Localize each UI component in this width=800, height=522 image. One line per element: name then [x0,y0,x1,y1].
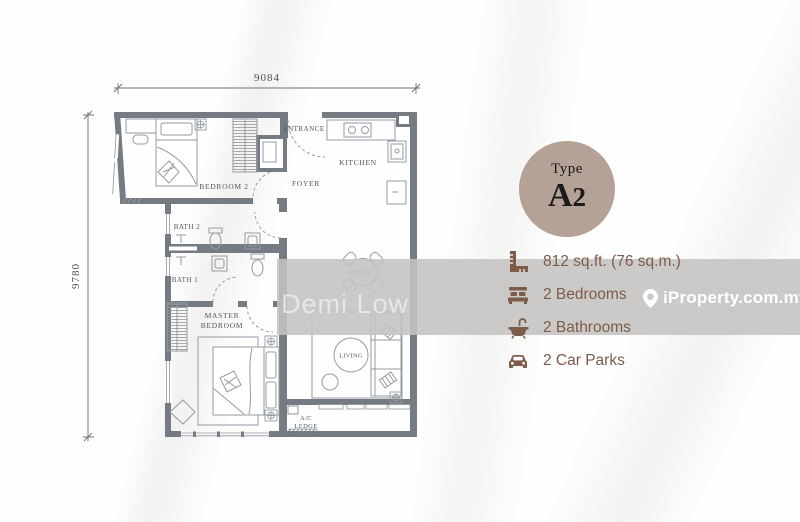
room-label-bedroom2: BEDROOM 2 [199,182,248,191]
corner-notch [399,116,409,124]
detail-row-bedrooms: 2 Bedrooms [505,278,681,311]
room-label-entrance: ENTRANCE [283,125,324,133]
room-label-bath2: BATH 2 [174,223,201,231]
detail-row-bathrooms: 2 Bathrooms [505,311,681,344]
bath-icon [505,317,531,339]
detail-carparks-text: 2 Car Parks [543,352,625,370]
dimension-top-label: 9084 [254,72,280,84]
bedroom2-bed [156,119,197,186]
room-label-bath1: BATH 1 [172,276,199,284]
room-label-master-2: BEDROOM [201,321,243,330]
ledge-vent [289,429,317,436]
room-label-master-1: MASTER [205,311,240,320]
dimension-left-label: 9780 [70,263,82,289]
car-icon [505,351,531,371]
room-label-acledge-1: A/C [300,415,312,422]
detail-bedrooms-text: 2 Bedrooms [543,286,627,304]
bedroom2-desk [126,119,157,144]
badge-type-label: Type [519,161,615,178]
ruler-icon [505,250,531,274]
agent-watermark: Demi Low [281,289,409,320]
room-label-foyer: FOYER [292,179,320,188]
unit-details-list: 812 sq.ft. (76 sq.m.) 2 Bedrooms [505,245,681,377]
detail-row-carparks: 2 Car Parks [505,344,681,377]
brand-watermark-text: iProperty.com.my [663,288,800,308]
room-label-acledge-2: LEDGE [294,423,317,430]
divider-shelf [169,247,197,251]
badge-unit-label: A2 [519,178,615,214]
detail-row-area: 812 sq.ft. (76 sq.m.) [505,245,681,278]
detail-area-text: 812 sq.ft. (76 sq.m.) [543,253,681,271]
bed-icon [505,285,531,305]
floorplan-page: 9084 9780 [0,0,800,522]
ledge-notch [288,406,298,414]
room-label-living: LIVING [339,353,363,360]
room-label-kitchen: KITCHEN [339,158,377,167]
detail-bathrooms-text: 2 Bathrooms [543,319,631,337]
unit-type-badge: Type A2 [519,141,615,237]
bath1-fixtures [176,254,264,276]
